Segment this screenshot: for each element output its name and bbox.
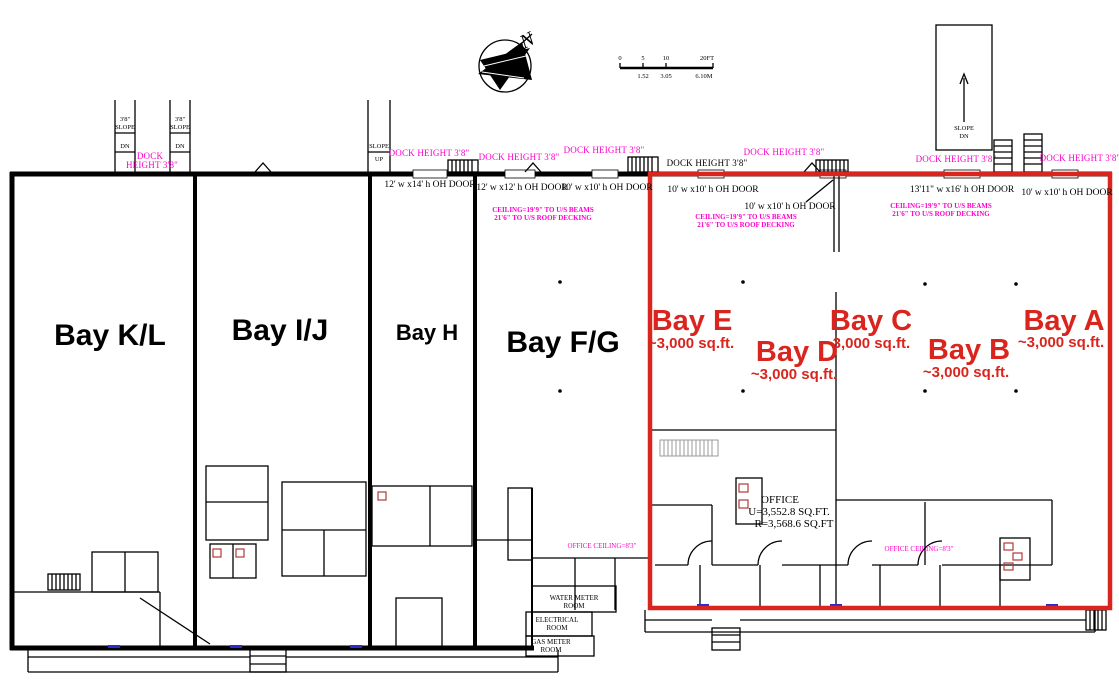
dock-height-label: DOCK HEIGHT 3'8" [389,148,470,158]
bay-label-fg: Bay F/G [506,326,619,359]
ramp4-dn: DN [959,133,969,140]
ramp1-slope: SLOPE [115,124,135,131]
north-compass: N [478,27,540,92]
bay-label-c: Bay C [830,305,912,337]
oh-door-label: 12' w x14' h OH DOOR [384,180,476,190]
dock-height-nw-line2: HEIGHT 3'8" [126,160,178,170]
scale-5: 5 [641,55,644,62]
office-ceiling-labels: OFFICE CEILING=8'3" OFFICE CEILING=8'3" [568,542,954,553]
interior-walls-bay-kl [13,552,210,648]
office-usable-area: U=3,552.8 SQ.FT. [748,506,830,518]
oh-door-label: 10' w x10' h OH DOOR [1021,188,1113,198]
electrical-room-line1: ELECTRICAL [536,616,579,624]
ramp4-slope: SLOPE [954,125,974,132]
office-rentable-area: R=3,568.6 SQ.FT [755,518,834,530]
dock-height-label: DOCK HEIGHT 3'8" [564,145,645,155]
gas-meter-room-line1: GAS METER [531,638,571,646]
bay-label-ij: Bay I/J [232,314,329,347]
office-ceiling-label: OFFICE CEILING=8'3" [568,542,637,550]
dock-height-label: DOCK HEIGHT 3'8" [916,154,997,164]
bay-label-b: Bay B [928,334,1010,366]
bay-area-a: ~3,000 sq.ft. [1018,334,1104,351]
bay-label-e: Bay E [652,305,733,337]
dock-height-label: DOCK HEIGHT 3'8" [479,152,560,162]
dock-height-label: DOCK HEIGHT 3'8" [667,158,748,168]
oh-door-label: 12' w x12' h OH DOOR [476,183,568,193]
bay-label-kl: Bay K/L [54,319,166,352]
bay-area-c: ~3,000 sq.ft. [824,335,910,352]
bay-label-a: Bay A [1023,305,1104,337]
ceiling-notes: CEILING=19'9" TO U/S BEAMS 21'6" TO U/S … [492,202,992,229]
water-meter-room-line2: ROOM [563,602,585,610]
ramp3-slope: SLOPE [369,143,389,150]
bay-area-d: ~3,000 sq.ft. [751,366,837,383]
ramp3-up: UP [375,156,384,163]
ceiling-note-line1: CEILING=19'9" TO U/S BEAMS [492,206,594,214]
door-thresholds [108,604,1058,648]
scale-m3: 6.10M [695,73,712,80]
ceiling-note-line2: 21'6" TO U/S ROOF DECKING [892,210,990,218]
oh-door-label: 13'11" w x16' h OH DOOR [910,185,1015,195]
dock-height-label: DOCK HEIGHT 3'8" [744,147,825,157]
scale-m2: 3.05 [660,73,671,80]
ramp2-grade: 3'8" [175,116,186,123]
office-ceiling-label: OFFICE CEILING=8'3" [885,545,954,553]
lease-outline [650,174,1110,608]
sidewalk-left [28,648,558,672]
sidewalk-right [645,610,1106,650]
bay-labels-existing: Bay K/L Bay I/J Bay H Bay F/G [54,314,620,359]
ceiling-note-line1: CEILING=19'9" TO U/S BEAMS [890,202,992,210]
dock-height-labels: DOCK HEIGHT 3'8" DOCK HEIGHT 3'8" DOCK H… [126,145,1119,170]
ceiling-note-line1: CEILING=19'9" TO U/S BEAMS [695,213,797,221]
utility-room-labels: WATER METER ROOM ELECTRICAL ROOM GAS MET… [531,594,598,654]
oh-door-label: 10' w x10' h OH DOOR [561,183,653,193]
gas-meter-room-line2: ROOM [540,646,562,654]
office-annotation: OFFICE U=3,552.8 SQ.FT. R=3,568.6 SQ.FT [748,494,833,530]
electrical-room-line2: ROOM [546,624,568,632]
ramp2-slope: SLOPE [170,124,190,131]
dock-height-label: DOCK HEIGHT 3'8" [1040,153,1119,163]
interior-walls-lease-area [650,176,1052,606]
oh-door-label: 10' w x10' h OH DOOR [744,202,836,212]
bay-label-h: Bay H [396,320,458,345]
scale-20ft: 20FT [700,55,714,62]
office-title: OFFICE [761,494,799,506]
water-meter-room-line1: WATER METER [550,594,599,602]
ceiling-note-line2: 21'6" TO U/S ROOF DECKING [494,214,592,222]
scale-bar: 0 5 10 20FT 1.52 3.05 6.10M [618,55,714,80]
scale-10: 10 [663,55,670,62]
scale-m1: 1.52 [637,73,648,80]
oh-door-label: 10' w x10' h OH DOOR [667,185,759,195]
floor-plan-canvas: N 0 5 10 20FT 1.52 3.05 6.10M 3'8" SLOPE… [0,0,1119,699]
ramp1-dn: DN [120,143,130,150]
scale-0: 0 [618,55,621,62]
bay-area-b: ~3,000 sq.ft. [923,364,1009,381]
ramp2-dn: DN [175,143,185,150]
interior-walls-bay-ij [206,466,366,578]
interior-walls-bay-h [372,486,472,648]
ceiling-note-line2: 21'6" TO U/S ROOF DECKING [697,221,795,229]
bay-labels-available: Bay E ~3,000 sq.ft. Bay D ~3,000 sq.ft. … [648,305,1105,383]
bay-area-e: ~3,000 sq.ft. [648,335,734,352]
exterior-walls [10,172,1112,650]
ramp1-grade: 3'8" [120,116,131,123]
floor-plan-page: N 0 5 10 20FT 1.52 3.05 6.10M 3'8" SLOPE… [0,0,1119,699]
